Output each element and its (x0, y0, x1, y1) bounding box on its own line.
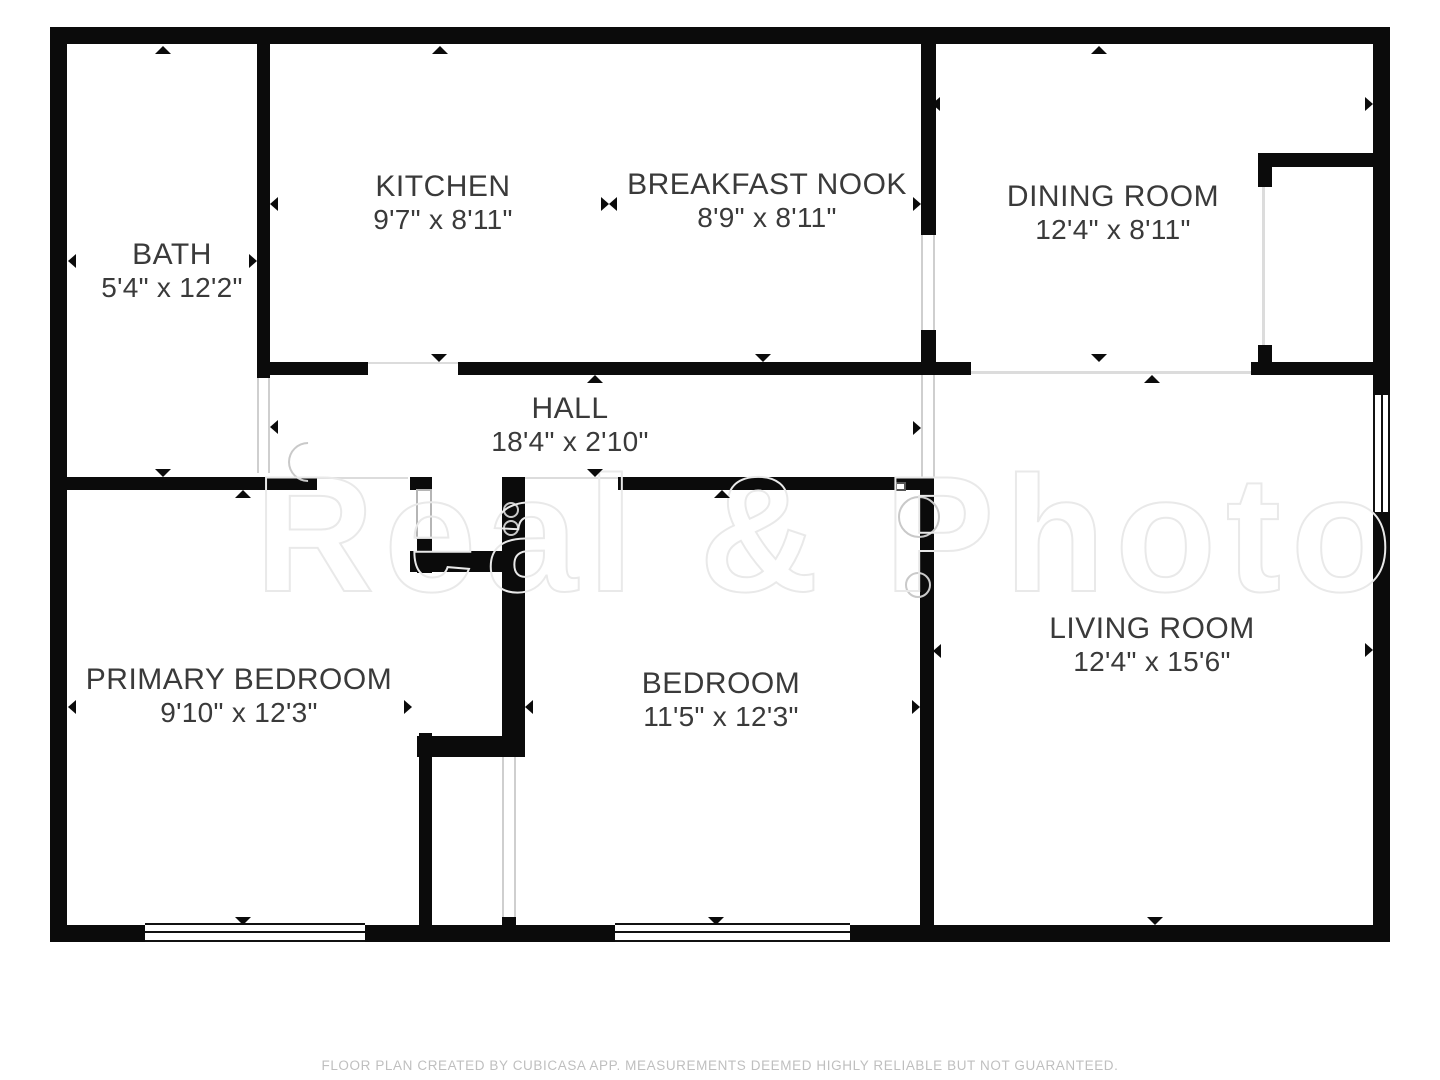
measure-arrow-down (431, 354, 447, 362)
measure-arrow-up (235, 490, 251, 498)
room-name: HALL (491, 392, 648, 426)
measure-arrow-down (155, 469, 171, 477)
measure-arrow-left (68, 254, 76, 268)
room-dims: 12'4" x 8'11" (1007, 214, 1219, 246)
wall-nook-dining-lower (921, 330, 936, 375)
room-name: BEDROOM (642, 667, 801, 701)
room-label-primary-bedroom: PRIMARY BEDROOM 9'10" x 12'3" (86, 663, 392, 729)
room-label-breakfast-nook: BREAKFAST NOOK 8'9" x 8'11" (627, 168, 907, 234)
measure-arrow-up (432, 46, 448, 54)
room-dims: 12'4" x 15'6" (1049, 646, 1255, 678)
floor-plan: Real & Photo BATH 5'4" x 12'2" KITCHEN 9… (0, 0, 1440, 1080)
measure-arrow-down (1091, 354, 1107, 362)
measure-arrow-up (1091, 46, 1107, 54)
wall-nook-dining-upper (921, 44, 936, 235)
measure-arrow-left (270, 420, 278, 434)
bedroom-partition-strip (502, 757, 516, 917)
room-dims: 9'7" x 8'11" (373, 204, 513, 236)
room-label-hall: HALL 18'4" x 2'10" (491, 392, 648, 458)
measure-arrow-right (601, 197, 609, 211)
room-label-bedroom: BEDROOM 11'5" x 12'3" (642, 667, 801, 733)
room-name: KITCHEN (373, 170, 513, 204)
wall-exterior-bottom-3 (850, 925, 1390, 942)
closet-wall-mid-lower (417, 736, 517, 757)
measure-arrow-left (933, 644, 941, 658)
measure-arrow-up (714, 490, 730, 498)
nook-dining-opening-jamb (933, 235, 935, 330)
measure-arrow-left (270, 197, 278, 211)
wall-exterior-bottom-2 (365, 925, 615, 942)
room-label-kitchen: KITCHEN 9'7" x 8'11" (373, 170, 513, 236)
partition-bottom-stub (502, 917, 516, 930)
room-dims: 11'5" x 12'3" (642, 701, 801, 733)
measure-arrow-up (155, 46, 171, 54)
dining-closet-top (1258, 153, 1373, 167)
room-name: DINING ROOM (1007, 180, 1219, 214)
measure-arrow-right (404, 700, 412, 714)
measure-arrow-down (587, 469, 603, 477)
room-name: LIVING ROOM (1049, 612, 1255, 646)
wall-bath-right (257, 44, 270, 378)
measure-arrow-down (235, 917, 251, 925)
room-name: BATH (101, 238, 243, 272)
kitchen-opening-threshold (368, 362, 458, 364)
measure-arrow-right (1365, 97, 1373, 111)
room-label-living-room: LIVING ROOM 12'4" x 15'6" (1049, 612, 1255, 678)
wall-exterior-bottom-1 (50, 925, 145, 942)
measure-arrow-left (68, 700, 76, 714)
room-dims: 18'4" x 2'10" (491, 426, 648, 458)
watermark: Real & Photo (255, 440, 1402, 629)
measure-arrow-right (913, 197, 921, 211)
measure-arrow-up (587, 375, 603, 383)
measure-arrow-down (755, 354, 771, 362)
measure-arrow-left (525, 700, 533, 714)
room-dims: 9'10" x 12'3" (86, 697, 392, 729)
room-name: PRIMARY BEDROOM (86, 663, 392, 697)
dining-closet-stub-upper (1258, 153, 1272, 187)
room-dims: 5'4" x 12'2" (101, 272, 243, 304)
wall-exterior-top (50, 27, 1390, 44)
dining-living-boundary (971, 371, 1255, 374)
room-label-dining-room: DINING ROOM 12'4" x 8'11" (1007, 180, 1219, 246)
measure-arrow-right (1365, 643, 1373, 657)
measure-arrow-down (1147, 917, 1163, 925)
wall-exterior-right-upper (1373, 27, 1390, 395)
measure-arrow-left (932, 97, 940, 111)
wall-hall-top-west (257, 362, 368, 375)
wall-bedroom-divider-lower (419, 733, 432, 930)
measure-arrow-left (609, 197, 617, 211)
measure-arrow-down (708, 917, 724, 925)
wall-hall-top-east (458, 362, 971, 375)
nook-dining-opening-jamb (921, 235, 923, 330)
room-dims: 8'9" x 8'11" (627, 202, 907, 234)
window-bedroom (615, 923, 850, 942)
footer-disclaimer: FLOOR PLAN CREATED BY CUBICASA APP. MEAS… (0, 1058, 1440, 1073)
dining-closet-door-line (1262, 187, 1265, 345)
room-label-bath: BATH 5'4" x 12'2" (101, 238, 243, 304)
measure-arrow-up (1144, 375, 1160, 383)
measure-arrow-right (249, 254, 257, 268)
measure-arrow-right (912, 700, 920, 714)
window-primary-bedroom (145, 923, 365, 942)
dining-closet-bottom (1251, 362, 1373, 375)
room-name: BREAKFAST NOOK (627, 168, 907, 202)
measure-arrow-right (913, 421, 921, 435)
